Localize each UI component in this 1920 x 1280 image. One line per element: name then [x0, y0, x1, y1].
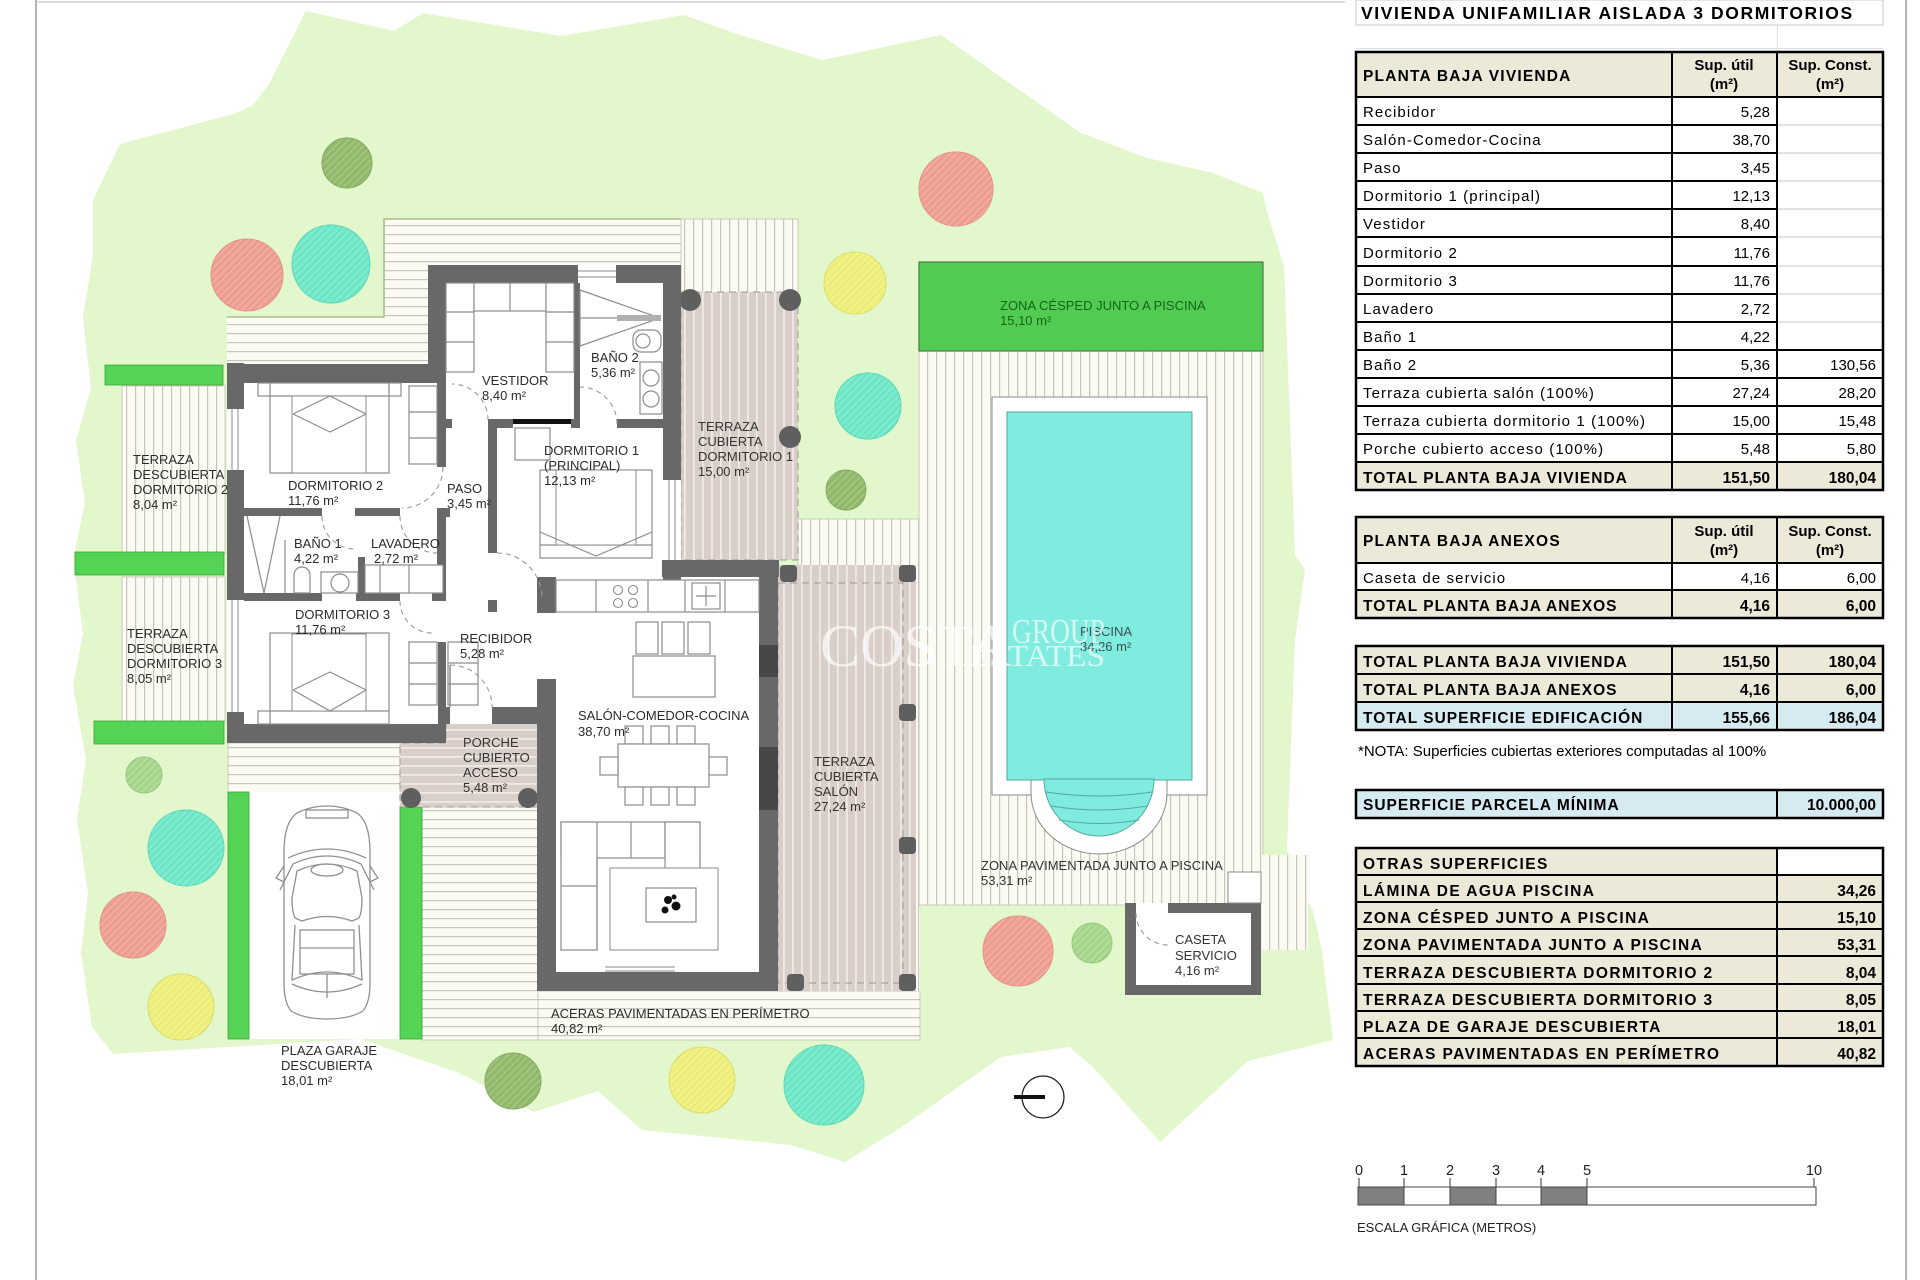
- svg-text:Terraza cubierta salón (100%): Terraza cubierta salón (100%): [1363, 385, 1595, 402]
- svg-text:OTRAS SUPERFICIES: OTRAS SUPERFICIES: [1363, 856, 1549, 873]
- svg-text:4,16: 4,16: [1740, 598, 1771, 615]
- svg-text:40,82 m²: 40,82 m²: [551, 1021, 603, 1036]
- svg-text:ZONA CÉSPED JUNTO A PISCINA: ZONA CÉSPED JUNTO A PISCINA: [1000, 298, 1206, 313]
- svg-text:(m²): (m²): [1710, 76, 1738, 93]
- svg-text:151,50: 151,50: [1723, 654, 1770, 671]
- svg-text:5,28 m²: 5,28 m²: [460, 646, 505, 661]
- svg-text:28,20: 28,20: [1838, 385, 1876, 402]
- svg-text:2,72 m²: 2,72 m²: [374, 551, 419, 566]
- svg-text:Porche cubierto acceso (100%): Porche cubierto acceso (100%): [1363, 441, 1604, 458]
- svg-text:27,24 m²: 27,24 m²: [814, 799, 866, 814]
- svg-text:11,76 m²: 11,76 m²: [295, 622, 346, 637]
- svg-text:ESCALA GRÁFICA (METROS): ESCALA GRÁFICA (METROS): [1357, 1220, 1536, 1235]
- svg-text:Sup. útil: Sup. útil: [1694, 523, 1753, 540]
- svg-text:5,80: 5,80: [1847, 441, 1876, 458]
- svg-text:155,66: 155,66: [1723, 710, 1771, 727]
- svg-text:2: 2: [1446, 1163, 1454, 1179]
- svg-text:3,45 m²: 3,45 m²: [447, 496, 492, 511]
- svg-text:4,22 m²: 4,22 m²: [294, 551, 339, 566]
- svg-text:151,50: 151,50: [1723, 470, 1770, 487]
- svg-text:TERRAZA DESCUBIERTA DORMITORIO: TERRAZA DESCUBIERTA DORMITORIO 3: [1363, 992, 1714, 1009]
- svg-text:15,48: 15,48: [1838, 413, 1876, 430]
- svg-text:SUPERFICIE PARCELA MÍNIMA: SUPERFICIE PARCELA MÍNIMA: [1363, 797, 1620, 814]
- svg-text:TERRAZA: TERRAZA: [127, 626, 188, 641]
- svg-text:5: 5: [1583, 1163, 1591, 1179]
- svg-text:11,76: 11,76: [1734, 273, 1770, 290]
- svg-text:TOTAL PLANTA BAJA ANEXOS: TOTAL PLANTA BAJA ANEXOS: [1363, 598, 1618, 615]
- svg-text:PLAZA DE GARAJE DESCUBIERTA: PLAZA DE GARAJE DESCUBIERTA: [1363, 1019, 1662, 1036]
- svg-text:180,04: 180,04: [1829, 470, 1877, 487]
- svg-text:8,40: 8,40: [1741, 216, 1770, 233]
- svg-text:VIVIENDA UNIFAMILIAR AISLADA 3: VIVIENDA UNIFAMILIAR AISLADA 3 DORMITORI…: [1361, 3, 1854, 23]
- svg-text:TERRAZA: TERRAZA: [698, 419, 759, 434]
- svg-text:TERRAZA: TERRAZA: [814, 754, 875, 769]
- svg-text:PORCHE: PORCHE: [463, 735, 519, 750]
- svg-text:DORMITORIO 2: DORMITORIO 2: [288, 478, 383, 493]
- svg-text:Dormitorio 2: Dormitorio 2: [1363, 245, 1458, 262]
- svg-text:Salón-Comedor-Cocina: Salón-Comedor-Cocina: [1363, 132, 1542, 149]
- svg-text:PASO: PASO: [447, 481, 482, 496]
- svg-text:LAVADERO: LAVADERO: [371, 536, 440, 551]
- svg-text:ACCESO: ACCESO: [463, 765, 518, 780]
- svg-text:SERVICIO: SERVICIO: [1175, 948, 1237, 963]
- svg-text:Paso: Paso: [1363, 160, 1402, 177]
- svg-text:PLANTA BAJA ANEXOS: PLANTA BAJA ANEXOS: [1363, 533, 1561, 550]
- svg-text:DORMITORIO 1: DORMITORIO 1: [698, 449, 793, 464]
- svg-text:6,00: 6,00: [1846, 682, 1876, 699]
- svg-text:180,04: 180,04: [1829, 654, 1877, 671]
- svg-text:Dormitorio 1 (principal): Dormitorio 1 (principal): [1363, 188, 1541, 205]
- svg-text:15,00 m²: 15,00 m²: [698, 464, 750, 479]
- svg-text:2,72: 2,72: [1741, 301, 1770, 318]
- svg-text:DESCUBIERTA: DESCUBIERTA: [127, 641, 219, 656]
- svg-text:Sup. Const.: Sup. Const.: [1788, 523, 1871, 540]
- svg-text:(PRINCIPAL): (PRINCIPAL): [544, 458, 620, 473]
- svg-text:4,22: 4,22: [1741, 329, 1770, 346]
- svg-text:5,36: 5,36: [1741, 357, 1770, 374]
- svg-text:(m²): (m²): [1710, 542, 1738, 559]
- svg-text:(m²): (m²): [1816, 76, 1844, 93]
- svg-text:40,82: 40,82: [1837, 1046, 1876, 1063]
- svg-text:0: 0: [1355, 1163, 1363, 1179]
- svg-text:12,13 m²: 12,13 m²: [544, 473, 596, 488]
- svg-text:10: 10: [1806, 1163, 1822, 1179]
- svg-text:DESCUBIERTA: DESCUBIERTA: [133, 467, 225, 482]
- svg-text:8,05 m²: 8,05 m²: [127, 671, 172, 686]
- svg-text:53,31: 53,31: [1837, 937, 1876, 954]
- svg-text:VESTIDOR: VESTIDOR: [482, 373, 548, 388]
- svg-text:Lavadero: Lavadero: [1363, 301, 1434, 318]
- svg-text:DESCUBIERTA: DESCUBIERTA: [281, 1058, 373, 1073]
- svg-text:11,76 m²: 11,76 m²: [288, 493, 339, 508]
- svg-text:15,00: 15,00: [1732, 413, 1770, 430]
- svg-text:130,56: 130,56: [1830, 357, 1876, 374]
- svg-text:12,13: 12,13: [1732, 188, 1770, 205]
- svg-text:TERRAZA DESCUBIERTA DORMITORIO: TERRAZA DESCUBIERTA DORMITORIO 2: [1363, 965, 1714, 982]
- svg-text:TOTAL SUPERFICIE EDIFICACIÓN: TOTAL SUPERFICIE EDIFICACIÓN: [1363, 709, 1643, 727]
- svg-text:ZONA PAVIMENTADA JUNTO A PISCI: ZONA PAVIMENTADA JUNTO A PISCINA: [1363, 937, 1703, 954]
- svg-text:DORMITORIO 1: DORMITORIO 1: [544, 443, 639, 458]
- svg-text:27,24: 27,24: [1732, 385, 1770, 402]
- svg-text:8,04 m²: 8,04 m²: [133, 497, 178, 512]
- svg-text:10.000,00: 10.000,00: [1807, 797, 1876, 814]
- svg-text:(m²): (m²): [1816, 542, 1844, 559]
- svg-text:4,16 m²: 4,16 m²: [1175, 963, 1220, 978]
- svg-text:LÁMINA DE AGUA PISCINA: LÁMINA DE AGUA PISCINA: [1363, 883, 1595, 900]
- svg-text:11,76: 11,76: [1734, 245, 1770, 262]
- svg-text:Recibidor: Recibidor: [1363, 104, 1436, 121]
- svg-text:DORMITORIO 3: DORMITORIO 3: [127, 656, 222, 671]
- svg-text:5,28: 5,28: [1741, 104, 1770, 121]
- svg-text:8,40 m²: 8,40 m²: [482, 388, 527, 403]
- svg-text:4: 4: [1537, 1163, 1545, 1179]
- svg-text:15,10: 15,10: [1837, 910, 1876, 927]
- svg-text:TOTAL PLANTA BAJA VIVIENDA: TOTAL PLANTA BAJA VIVIENDA: [1363, 654, 1628, 671]
- svg-text:Baño 2: Baño 2: [1363, 357, 1417, 374]
- svg-text:Sup. útil: Sup. útil: [1694, 57, 1753, 74]
- svg-text:5,48: 5,48: [1741, 441, 1770, 458]
- svg-text:ZONA CÉSPED JUNTO A PISCINA: ZONA CÉSPED JUNTO A PISCINA: [1363, 910, 1650, 927]
- svg-text:3: 3: [1492, 1163, 1500, 1179]
- svg-text:TOTAL PLANTA BAJA VIVIENDA: TOTAL PLANTA BAJA VIVIENDA: [1363, 470, 1628, 487]
- svg-text:PLANTA BAJA VIVIENDA: PLANTA BAJA VIVIENDA: [1363, 68, 1572, 85]
- svg-text:186,04: 186,04: [1829, 710, 1877, 727]
- svg-text:ACERAS PAVIMENTADAS EN PERÍMET: ACERAS PAVIMENTADAS EN PERÍMETRO: [551, 1006, 810, 1021]
- svg-text:4,16: 4,16: [1740, 682, 1771, 699]
- svg-text:DORMITORIO 2: DORMITORIO 2: [133, 482, 228, 497]
- svg-text:*NOTA: Superficies cubiertas e: *NOTA: Superficies cubiertas exteriores …: [1358, 743, 1766, 760]
- svg-text:8,04: 8,04: [1846, 965, 1877, 982]
- svg-text:3,45: 3,45: [1741, 160, 1770, 177]
- svg-text:Sup. Const.: Sup. Const.: [1788, 57, 1871, 74]
- svg-text:CASETA: CASETA: [1175, 932, 1226, 947]
- svg-text:Baño 1: Baño 1: [1363, 329, 1417, 346]
- svg-text:Dormitorio 3: Dormitorio 3: [1363, 273, 1458, 290]
- svg-text:CUBIERTA: CUBIERTA: [698, 434, 763, 449]
- svg-text:5,48 m²: 5,48 m²: [463, 780, 508, 795]
- svg-text:SALÓN: SALÓN: [814, 784, 858, 799]
- svg-text:BAÑO 1: BAÑO 1: [294, 536, 342, 551]
- svg-text:1: 1: [1400, 1163, 1408, 1179]
- svg-text:SALÓN-COMEDOR-COCINA: SALÓN-COMEDOR-COCINA: [578, 708, 750, 723]
- svg-text:4,16: 4,16: [1741, 570, 1770, 587]
- svg-text:6,00: 6,00: [1847, 570, 1876, 587]
- svg-text:38,70: 38,70: [1732, 132, 1770, 149]
- svg-text:8,05: 8,05: [1846, 992, 1877, 1009]
- svg-text:18,01: 18,01: [1837, 1019, 1876, 1036]
- svg-text:TERRAZA: TERRAZA: [133, 452, 194, 467]
- svg-text:18,01 m²: 18,01 m²: [281, 1073, 333, 1088]
- svg-text:DORMITORIO 3: DORMITORIO 3: [295, 607, 390, 622]
- svg-text:ZONA PAVIMENTADA JUNTO A PISCI: ZONA PAVIMENTADA JUNTO A PISCINA: [981, 858, 1223, 873]
- svg-text:ACERAS PAVIMENTADAS EN PERÍMET: ACERAS PAVIMENTADAS EN PERÍMETRO: [1363, 1046, 1720, 1063]
- svg-text:34,26: 34,26: [1837, 883, 1876, 900]
- svg-text:RECIBIDOR: RECIBIDOR: [460, 631, 532, 646]
- svg-text:PLAZA GARAJE: PLAZA GARAJE: [281, 1043, 377, 1058]
- svg-text:6,00: 6,00: [1846, 598, 1876, 615]
- svg-text:CUBIERTA: CUBIERTA: [814, 769, 879, 784]
- svg-text:BAÑO 2: BAÑO 2: [591, 350, 639, 365]
- svg-text:53,31 m²: 53,31 m²: [981, 873, 1033, 888]
- svg-text:Vestidor: Vestidor: [1363, 216, 1426, 233]
- svg-text:5,36 m²: 5,36 m²: [591, 365, 636, 380]
- svg-text:Terraza cubierta dormitorio 1: Terraza cubierta dormitorio 1 (100%): [1363, 413, 1646, 430]
- svg-text:TOTAL PLANTA BAJA ANEXOS: TOTAL PLANTA BAJA ANEXOS: [1363, 682, 1618, 699]
- svg-text:15,10 m²: 15,10 m²: [1000, 313, 1052, 328]
- svg-text:38,70 m²: 38,70 m²: [578, 724, 630, 739]
- svg-text:CUBIERTO: CUBIERTO: [463, 750, 530, 765]
- svg-text:Caseta de servicio: Caseta de servicio: [1363, 570, 1506, 587]
- svg-text:ESTATES: ESTATES: [969, 638, 1105, 673]
